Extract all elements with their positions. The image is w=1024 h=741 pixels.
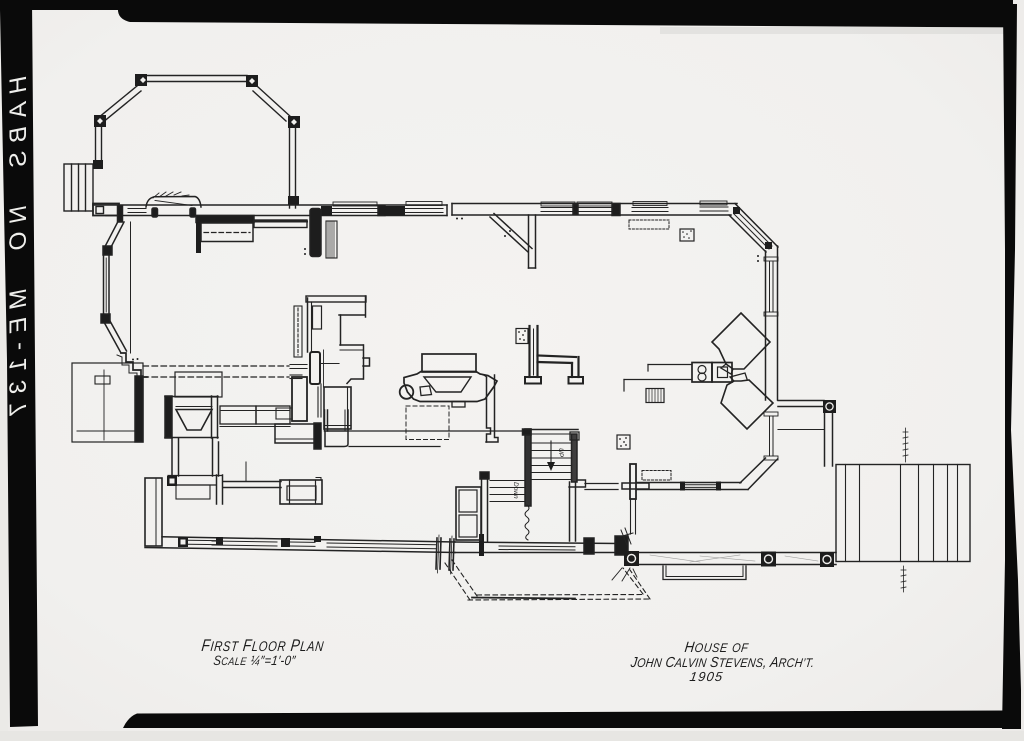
svg-text:UP: UP	[557, 448, 564, 458]
svg-text:SCALE ¼″=1′-0″: SCALE ¼″=1′-0″	[213, 653, 297, 668]
svg-text:Down: Down	[512, 482, 519, 499]
svg-text:1905: 1905	[689, 669, 725, 684]
svg-text:HABS NO ME-137: HABS NO ME-137	[5, 76, 32, 424]
svg-text:JOHN CALVIN STEVENS, ARCH’T.: JOHN CALVIN STEVENS, ARCH’T.	[629, 654, 816, 670]
